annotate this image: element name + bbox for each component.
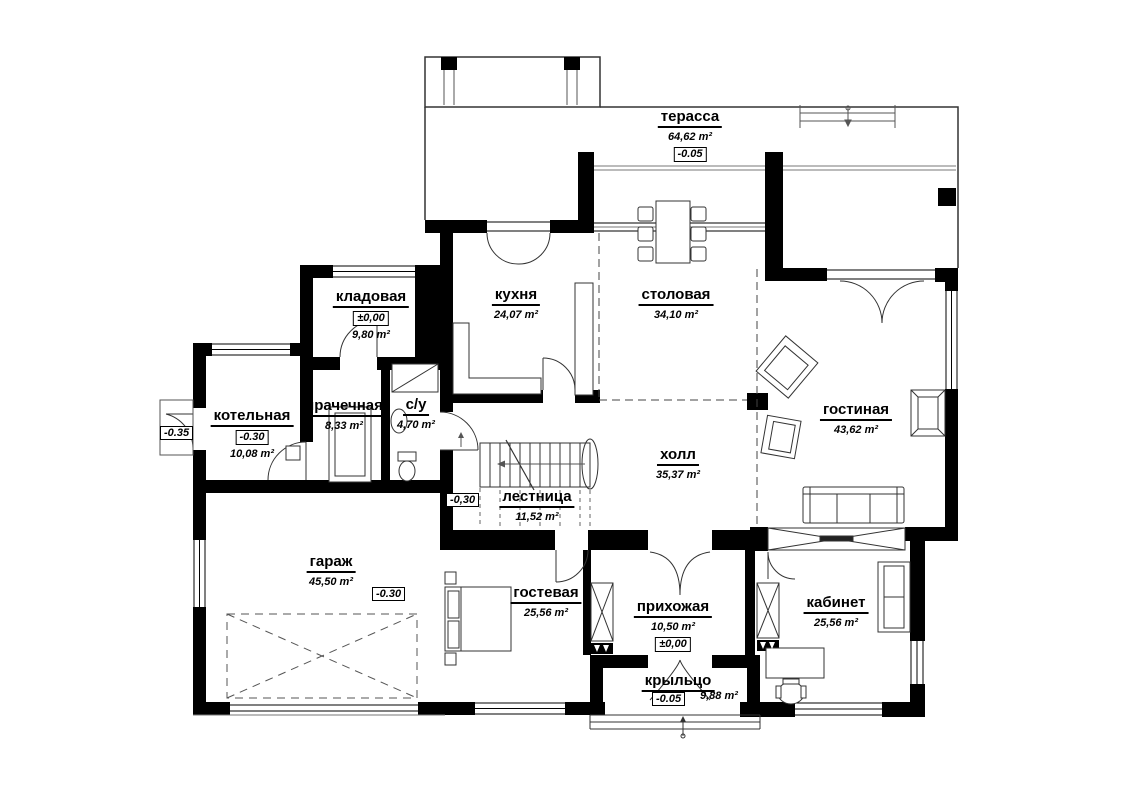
door-prihozhaya-hall (650, 552, 710, 595)
room-name: терасса (658, 108, 722, 128)
room-name: гараж (307, 553, 356, 573)
porch-steps (590, 715, 760, 738)
window-gostevaya (475, 703, 565, 714)
room-label-kuhnya: кухня 24,07 m² (492, 286, 540, 322)
window-gostinaya-right (946, 291, 957, 389)
room-label-kladovaya: кладовая ±0,00 9,80 m² (333, 288, 409, 342)
area-marker-porch: 9,88 m² (700, 690, 738, 702)
room-label-prihozhaya: прихожая 10,50 m² ±0,00 (634, 598, 712, 652)
room-name: кабинет (804, 594, 869, 614)
floor-plan-drawing (0, 0, 1123, 794)
window-kabinet-bottom (795, 703, 882, 715)
level-marker-stairs: -0,30 (446, 493, 479, 507)
window-garage-left (194, 540, 205, 607)
wardrobe-right (757, 583, 779, 638)
dining-table (638, 201, 706, 263)
room-area: 25,56 m² (814, 617, 858, 630)
guest-bed (445, 572, 511, 665)
room-level: ±0,00 (353, 311, 388, 326)
terrace-steps (800, 105, 895, 128)
room-label-su: с/у 4,70 m² (397, 396, 435, 432)
room-name: прихожая (634, 598, 712, 618)
room-area: 24,07 m² (494, 309, 538, 322)
level-marker-porch: -0.05 (652, 692, 685, 706)
desk (766, 648, 824, 678)
room-label-holl: холл 35,37 m² (656, 446, 700, 482)
room-name: холл (657, 446, 699, 466)
room-name: кухня (492, 286, 540, 306)
room-area: 45,50 m² (309, 576, 353, 589)
door-living-terrace (840, 281, 924, 323)
room-name: котельная (211, 407, 294, 427)
room-level: -0.05 (673, 147, 706, 162)
room-name: столовая (639, 286, 714, 306)
level-marker-outside: -0.35 (160, 426, 193, 440)
window-kotelnaya (212, 344, 290, 355)
room-name: с/у (403, 396, 430, 416)
room-name: гостевая (510, 584, 581, 604)
room-area: 34,10 m² (654, 309, 698, 322)
room-label-kabinet: кабинет 25,56 m² (804, 594, 869, 630)
room-area: 10,08 m² (230, 448, 274, 461)
garage-door (193, 705, 445, 715)
doors (160, 233, 924, 700)
tv-console (768, 528, 905, 550)
room-area: 9,80 m² (352, 329, 390, 342)
room-area: 35,37 m² (656, 469, 700, 482)
room-area: 64,62 m² (668, 131, 712, 144)
room-label-garazh: гараж 45,50 m² (307, 553, 356, 589)
room-area: 8,33 m² (325, 420, 363, 433)
zone-separators (599, 233, 757, 527)
armchair-2 (761, 415, 801, 458)
room-name: прачечная (302, 397, 386, 417)
room-level: ±0,00 (655, 637, 690, 652)
threshold-living (827, 270, 935, 279)
door-su (440, 412, 478, 450)
level-arrow-corridor (458, 432, 464, 447)
room-area: 4,70 m² (397, 419, 435, 432)
room-label-terrace: терасса 64,62 m² -0.05 (658, 108, 722, 162)
room-name: кладовая (333, 288, 409, 308)
room-label-gostinaya: гостиная 43,62 m² (820, 401, 892, 437)
fireplace (911, 390, 945, 436)
room-area: 11,52 m² (515, 511, 558, 524)
room-name: лестница (499, 488, 574, 508)
level-marker-garage: -0.30 (372, 587, 405, 601)
room-label-lestnitsa: лестница 11,52 m² (499, 488, 574, 524)
office-chair (776, 679, 806, 704)
room-label-gostevaya: гостевая 25,56 m² (510, 584, 581, 620)
room-area: 10,50 m² (651, 621, 695, 634)
car-space (227, 614, 417, 698)
room-label-kotelnaya: котельная -0.30 10,08 m² (211, 407, 294, 461)
room-level: -0.30 (235, 430, 268, 445)
window-kabinet-right (911, 641, 923, 684)
room-area: 25,56 m² (524, 607, 568, 620)
room-area: 43,62 m² (834, 424, 878, 437)
door-kitchen-hall (543, 358, 575, 390)
floor-plan: терасса 64,62 m² -0.05 кладовая ±0,00 9,… (0, 0, 1123, 794)
room-name: гостиная (820, 401, 892, 421)
threshold-kitchen (487, 222, 550, 231)
wardrobe-left (591, 583, 613, 641)
room-label-prachechnaya: прачечная 8,33 m² (302, 397, 386, 433)
sofa (803, 487, 904, 523)
window-kladovaya (333, 266, 415, 277)
door-kabinet (768, 552, 795, 579)
door-kitchen-terrace (487, 233, 550, 264)
room-label-stolovaya: столовая 34,10 m² (639, 286, 714, 322)
armchair-1 (756, 336, 818, 398)
bookshelf (878, 562, 910, 632)
